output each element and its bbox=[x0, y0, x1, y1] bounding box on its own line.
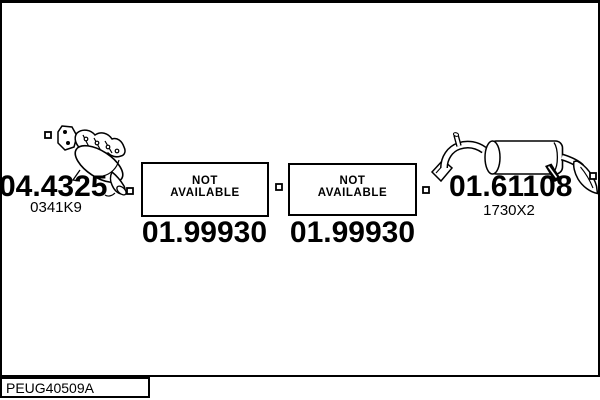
catalog-code-box: PEUG40509A bbox=[0, 377, 150, 398]
part-number-middle-right[interactable]: 01.99930 bbox=[282, 218, 423, 248]
catalog-code: PEUG40509A bbox=[6, 381, 94, 395]
connector-marker-icon bbox=[423, 187, 429, 193]
connector-marker-icon bbox=[127, 188, 133, 194]
not-available-box-left: NOT AVAILABLE bbox=[141, 162, 269, 217]
connector-marker-icon bbox=[590, 173, 596, 179]
ref-code-silencer: 1730X2 bbox=[469, 203, 549, 218]
connector-marker-icon bbox=[276, 184, 282, 190]
not-available-line1: NOT bbox=[192, 175, 218, 187]
ref-code-manifold: 0341K9 bbox=[16, 200, 96, 215]
not-available-box-right: NOT AVAILABLE bbox=[288, 163, 417, 216]
not-available-line2: AVAILABLE bbox=[170, 187, 240, 199]
part-number-middle-left[interactable]: 01.99930 bbox=[134, 218, 275, 248]
connector-marker-icon bbox=[45, 132, 51, 138]
not-available-line2: AVAILABLE bbox=[318, 187, 388, 199]
part-number-silencer[interactable]: 01.61108 bbox=[449, 172, 572, 202]
part-number-manifold[interactable]: 04.4325 bbox=[0, 172, 107, 202]
parts-diagram-page: 04.4325 0341K9 NOT AVAILABLE 01.99930 NO… bbox=[0, 0, 600, 400]
not-available-line1: NOT bbox=[339, 175, 365, 187]
